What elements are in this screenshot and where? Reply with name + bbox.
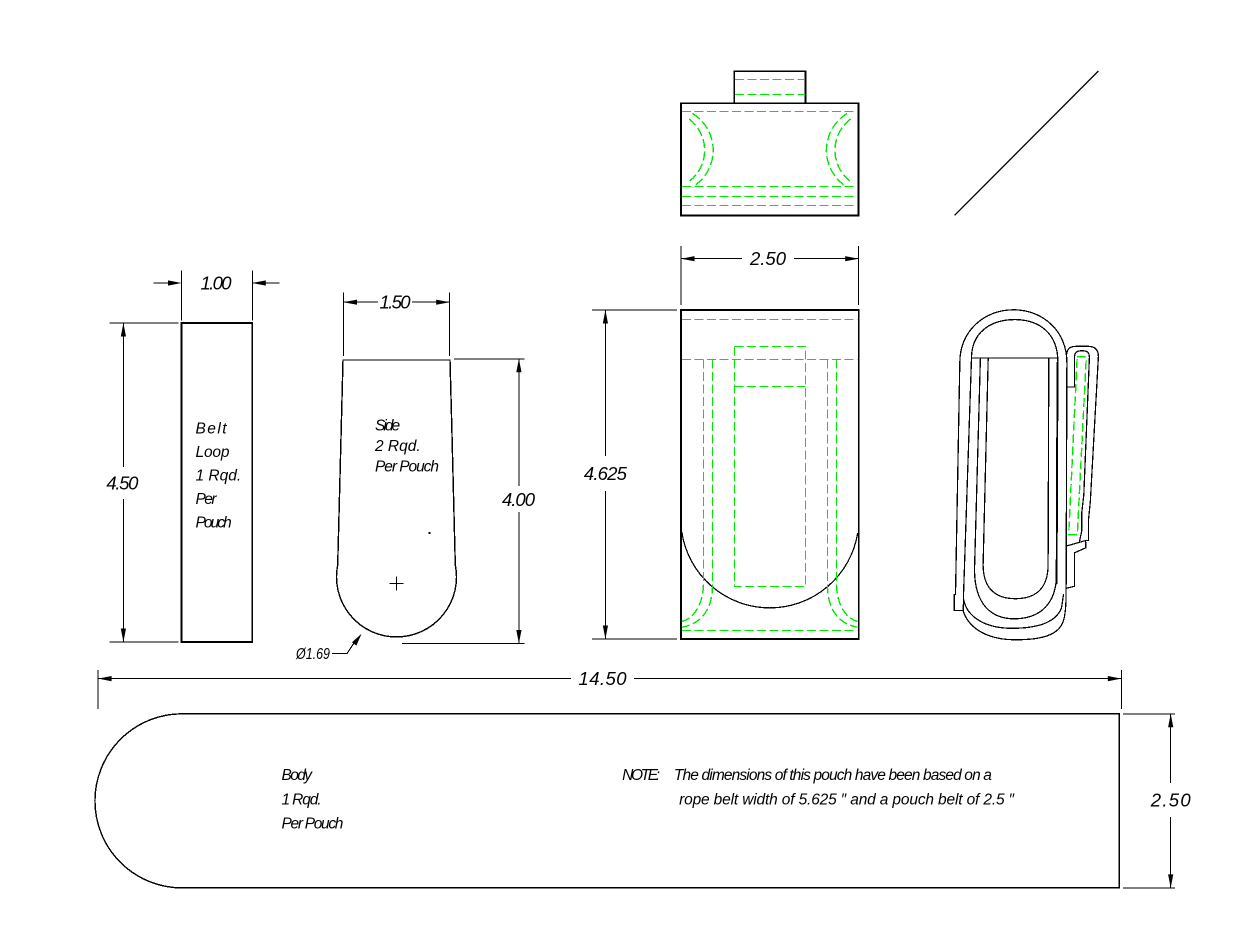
svg-text:The dimensions of this pouch h: The dimensions of this pouch have been b… (674, 767, 992, 784)
svg-text:rope belt width of 5.625 ″ and: rope belt width of 5.625 ″ and a pouch b… (679, 791, 1015, 808)
svg-text:Side: Side (375, 418, 400, 435)
svg-text:4.00: 4.00 (502, 489, 536, 510)
svg-text:4.50: 4.50 (106, 473, 139, 494)
svg-text:1.50: 1.50 (380, 292, 412, 313)
svg-text:Per Pouch: Per Pouch (375, 459, 439, 476)
svg-text:1 Rqd.: 1 Rqd. (196, 468, 242, 485)
svg-text:1.00: 1.00 (201, 273, 233, 294)
svg-text:2 Rqd.: 2 Rqd. (374, 438, 421, 455)
svg-text:14.50: 14.50 (579, 668, 628, 689)
svg-text:Belt: Belt (196, 421, 228, 438)
svg-text:2.50: 2.50 (749, 248, 787, 269)
svg-text:Per Pouch: Per Pouch (282, 816, 344, 833)
svg-text:1 Rqd.: 1 Rqd. (282, 791, 322, 808)
svg-text:NOTE:: NOTE: (622, 767, 660, 784)
svg-text:Per: Per (196, 491, 218, 508)
svg-text:Body: Body (282, 767, 314, 784)
svg-text:Ø1.69: Ø1.69 (295, 646, 330, 663)
svg-text:Pouch: Pouch (196, 515, 232, 532)
svg-text:2.50: 2.50 (1150, 790, 1192, 811)
svg-text:4.625: 4.625 (584, 463, 628, 484)
svg-text:Loop: Loop (196, 444, 230, 461)
